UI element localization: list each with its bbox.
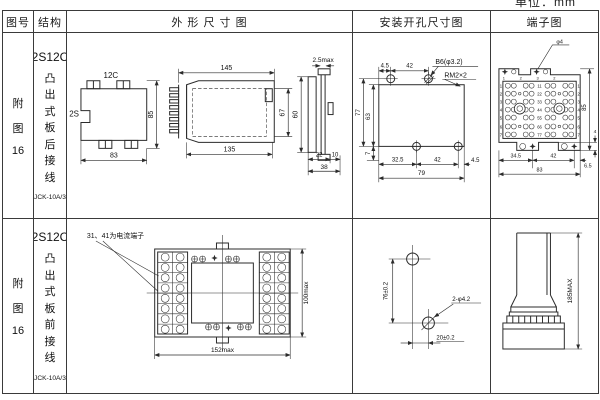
dim-label: 2.5max xyxy=(312,57,334,64)
outline-cell-front: 31、41为电流端子 xyxy=(67,219,353,393)
dim-label: 4.5 xyxy=(471,158,480,164)
dim-label: 83 xyxy=(110,152,118,159)
fig-char: 附 xyxy=(13,275,24,291)
mounting-cell-front: 76±0.2 20±0.2 2-φ4.2 xyxy=(353,219,491,393)
terminal-number: 33 xyxy=(537,100,542,105)
dim-label: 12C xyxy=(104,71,119,80)
structure-char: 出 xyxy=(45,87,56,104)
outline-drawing-front: 31、41为电流端子 xyxy=(67,219,352,393)
structure-char: 线 xyxy=(45,170,56,187)
model-label: 2S12C xyxy=(34,50,67,64)
dim-label: 67 xyxy=(280,109,287,117)
terminal-number: 55 xyxy=(537,116,542,121)
terminal-number: 77 xyxy=(537,132,542,137)
dim-label: 22 xyxy=(316,152,323,158)
header-outline: 外 形 尺 寸 图 xyxy=(67,11,353,33)
outline-cell-rear: 12C 2S 85 83 xyxy=(67,33,353,219)
fig-no-cell: 附 图 16 xyxy=(3,33,34,219)
terminal-row-number: 6 xyxy=(500,124,503,129)
terminal-side-view-front: 185MAX xyxy=(491,219,598,393)
terminal-col-label: 3 xyxy=(536,76,539,81)
dim-label: 7 xyxy=(366,151,372,155)
structure-cell: 2S12C 凸 出 式 板 后 接 线 JCK-10A/3 xyxy=(34,33,67,219)
header-terminal: 端子图 xyxy=(491,11,598,33)
structure-char: 接 xyxy=(45,334,56,351)
fig-char: 图 xyxy=(13,120,24,136)
structure-char: 凸 xyxy=(45,251,56,268)
header-fig-no: 图号 xyxy=(3,11,34,33)
terminal-number: 22 xyxy=(537,92,542,97)
terminal-diagram-rear: 1 2 3 2 1 2 3 4 5 6 7 11 22 33 44 xyxy=(491,33,598,218)
dim-label: 152max xyxy=(211,347,235,354)
structure-char: 接 xyxy=(45,153,56,170)
terminal-cell-rear: 1 2 3 2 1 2 3 4 5 6 7 11 22 33 44 xyxy=(491,33,598,219)
terminal-row-number: 5 xyxy=(500,116,503,121)
dim-label: 60 xyxy=(293,111,300,119)
dim-label: 42 xyxy=(434,157,441,163)
dim-label: 85 xyxy=(582,104,588,111)
dim-label: 79 xyxy=(418,170,426,177)
terminal-row-number: 1 xyxy=(500,84,503,89)
structure-char: 式 xyxy=(45,104,56,121)
structure-char: 凸 xyxy=(45,71,56,88)
dim-label: 6.5 xyxy=(584,163,592,169)
fig-char: 图 xyxy=(13,300,24,316)
dim-label: 42 xyxy=(406,63,413,69)
header-structure: 结构 xyxy=(34,11,67,33)
terminal-row-number: 7 xyxy=(500,132,503,137)
structure-char: 出 xyxy=(45,268,56,285)
dim-label: 63 xyxy=(365,113,372,121)
terminal-row-number: 4 xyxy=(500,108,503,113)
dim-label: 77 xyxy=(355,109,362,117)
terminal-row-number: 3 xyxy=(500,100,503,105)
terminal-col-label: 2 xyxy=(520,76,522,81)
dim-label: 135 xyxy=(224,146,236,153)
structure-char: 板 xyxy=(45,120,56,137)
structure-char: 板 xyxy=(45,301,56,318)
dim-label: 100max xyxy=(303,281,310,305)
structure-char: 前 xyxy=(45,317,56,334)
structure-char: 后 xyxy=(45,137,56,154)
structure-char: 线 xyxy=(45,350,56,367)
dim-label: 20±0.2 xyxy=(436,335,455,341)
mounting-holes-drawing-front: 76±0.2 20±0.2 2-φ4.2 xyxy=(353,219,490,393)
fig-no-cell: 附 图 16 xyxy=(3,219,34,393)
hole-spec-label: B6(φ3.2) xyxy=(435,59,462,66)
outline-drawing-rear: 12C 2S 85 83 xyxy=(67,33,352,218)
terminal-row-number: 2 xyxy=(500,92,503,97)
dim-label: 42 xyxy=(550,154,556,160)
hole-spec-label: 2-φ4.2 xyxy=(452,296,471,303)
hole-callout: φ4 xyxy=(556,39,563,45)
terminal-col-label: 1 xyxy=(503,76,506,81)
current-terminal-note: 31、41为电流端子 xyxy=(87,231,144,240)
terminal-number: 11 xyxy=(537,84,542,89)
dim-label: 10 xyxy=(332,152,339,158)
structure-cell: 2S12C 凸 出 式 板 前 接 线 JCK-10A/3 xyxy=(34,219,67,393)
product-label: JCK-10A/3 xyxy=(34,194,66,201)
dim-label: 185MAX xyxy=(567,278,574,304)
manual-page: 单位：mm 图号 结构 外 形 尺 寸 图 安装开孔尺寸图 端子图 附 图 16… xyxy=(0,0,600,400)
terminal-number: 44 xyxy=(537,108,542,113)
mounting-holes-drawing-rear: 4.5 42 B6(φ3.2) RM2×2 77 63 7 xyxy=(353,33,490,218)
dim-label: 145 xyxy=(221,65,233,72)
dim-label: 83 xyxy=(537,168,543,174)
product-label: JCK-10A/3 xyxy=(34,375,66,382)
mounting-cell-rear: 4.5 42 B6(φ3.2) RM2×2 77 63 7 xyxy=(353,33,491,219)
dim-label: 38 xyxy=(320,164,328,171)
dim-label: 4 xyxy=(594,129,597,135)
thread-spec-label: RM2×2 xyxy=(444,72,467,79)
dim-label: 4.5 xyxy=(381,63,390,69)
dim-label: 2S xyxy=(69,110,79,119)
unit-label: 单位：mm xyxy=(515,0,576,10)
terminal-number: 66 xyxy=(537,124,542,129)
dim-label: 32.5 xyxy=(392,157,404,163)
dim-label: 85 xyxy=(148,111,155,119)
spec-table: 图号 结构 外 形 尺 寸 图 安装开孔尺寸图 端子图 附 图 16 2S12C… xyxy=(2,10,599,394)
fig-char: 16 xyxy=(12,145,24,157)
terminal-col-label: 2 xyxy=(553,76,555,81)
dim-label: 76±0.2 xyxy=(384,281,390,300)
header-mounting: 安装开孔尺寸图 xyxy=(353,11,491,33)
dim-label: 34.5 xyxy=(510,154,521,160)
fig-char: 附 xyxy=(13,95,24,111)
structure-char: 式 xyxy=(45,284,56,301)
fig-char: 16 xyxy=(12,325,24,337)
terminal-cell-front: 185MAX xyxy=(491,219,598,393)
model-label: 2S12C xyxy=(34,230,67,244)
